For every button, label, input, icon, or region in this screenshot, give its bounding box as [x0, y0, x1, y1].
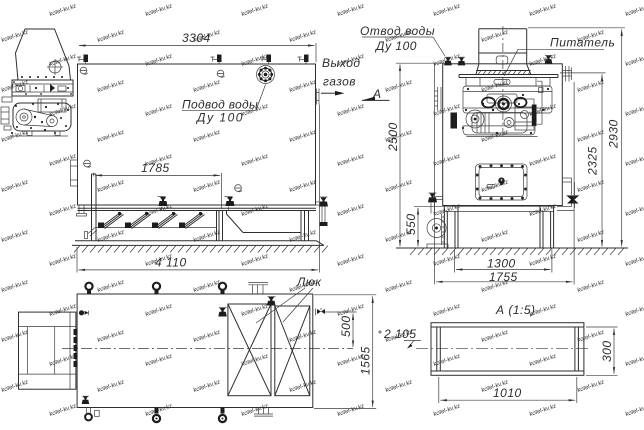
svg-text:2930: 2930	[607, 119, 621, 149]
svg-text:1785: 1785	[141, 161, 170, 175]
svg-text:Подвод воды: Подвод воды	[182, 98, 258, 112]
svg-text:2500: 2500	[386, 122, 400, 152]
svg-text:1755: 1755	[489, 270, 518, 284]
svg-text:Выход: Выход	[322, 56, 361, 70]
svg-text:Отвод воды: Отвод воды	[360, 24, 435, 38]
svg-text:1565: 1565	[359, 346, 373, 375]
svg-text:газов: газов	[323, 75, 356, 89]
svg-text:4 110: 4 110	[155, 256, 187, 270]
svg-text:А (1:5): А (1:5)	[495, 303, 536, 317]
svg-text:Ду 100: Ду 100	[374, 39, 417, 53]
svg-text:500: 500	[339, 315, 353, 337]
svg-text:Ду 100: Ду 100	[195, 111, 244, 125]
svg-text:Питатель: Питатель	[550, 36, 615, 50]
svg-text:300: 300	[600, 340, 614, 362]
svg-text:Люк: Люк	[296, 275, 322, 289]
svg-text:550: 550	[404, 213, 418, 235]
svg-text:2325: 2325	[586, 146, 600, 176]
svg-text:1010: 1010	[493, 386, 522, 400]
svg-text:3304: 3304	[182, 31, 211, 45]
svg-text:2 105: 2 105	[383, 327, 417, 341]
svg-text:1300: 1300	[487, 257, 516, 271]
